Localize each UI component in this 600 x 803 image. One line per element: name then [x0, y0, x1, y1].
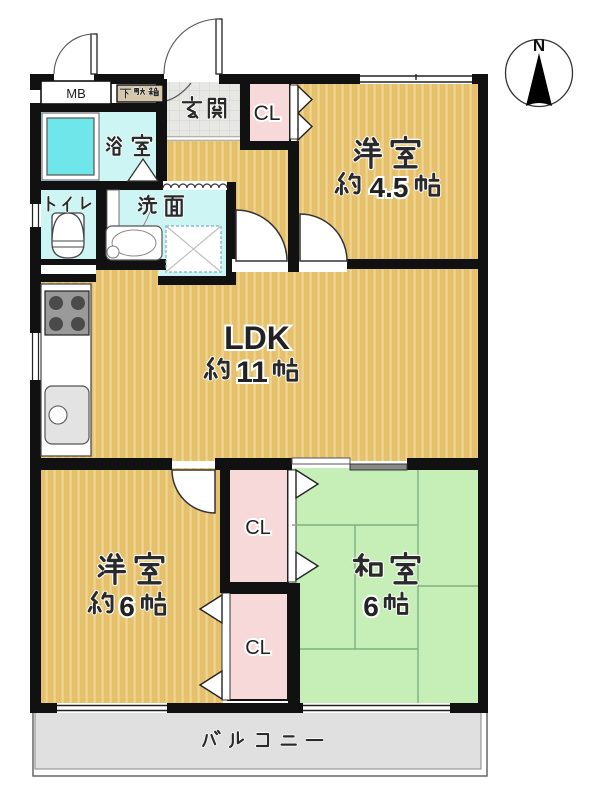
svg-text:MB: MB — [66, 86, 86, 101]
svg-text:CL: CL — [254, 102, 281, 125]
svg-text:11: 11 — [236, 356, 268, 389]
svg-text:CL: CL — [245, 517, 271, 539]
svg-text:6: 6 — [363, 591, 379, 622]
svg-text:LDK: LDK — [224, 320, 290, 356]
svg-text:CL: CL — [245, 637, 271, 659]
svg-text:6: 6 — [119, 591, 135, 622]
svg-text:4.5: 4.5 — [370, 172, 409, 203]
svg-text:N: N — [533, 36, 545, 55]
